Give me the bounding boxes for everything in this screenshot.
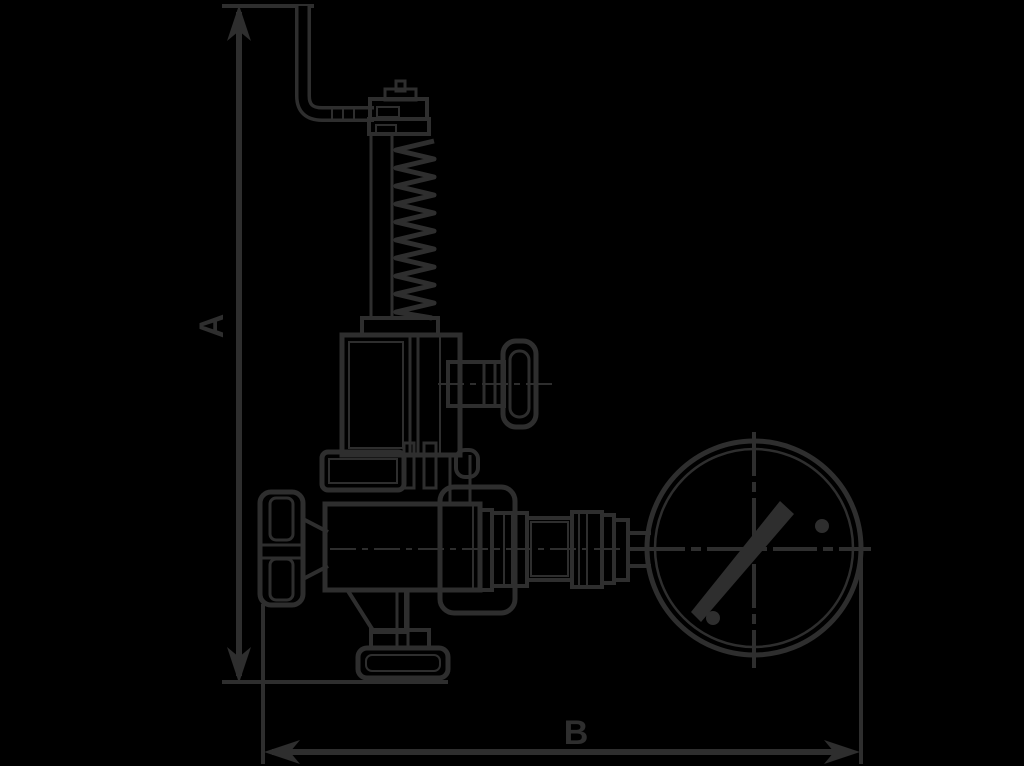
adjusting-screw [369, 81, 429, 134]
flange-outline [322, 452, 404, 490]
lever-bore [303, 6, 374, 114]
pressure-gauge [641, 432, 871, 668]
bonnet [342, 335, 460, 455]
valve-technical-drawing: A B [0, 0, 1024, 766]
base-flange-inner [366, 655, 440, 671]
top-plate-detail [377, 107, 399, 117]
gauge-screw-dot [815, 519, 829, 533]
bonnet-outline [342, 335, 460, 455]
flange-curl [456, 450, 478, 477]
spindle [371, 134, 392, 318]
bonnet-inner [349, 342, 403, 448]
spring-cap-detail [376, 125, 396, 133]
inlet-flange [322, 443, 478, 503]
hand-wheel [260, 492, 328, 605]
gauge-needle [691, 501, 794, 622]
spring [362, 141, 438, 335]
valve-body [325, 487, 515, 678]
gland-valve [438, 341, 553, 427]
gauge-piping [330, 510, 651, 590]
dimension-a-label: A [193, 314, 231, 339]
drawing-stage: A B [0, 0, 1024, 766]
lever-outline [303, 6, 374, 114]
spring-cap [369, 119, 429, 134]
hand-wheel-outline [260, 492, 303, 605]
gauge-screw-dot [706, 611, 720, 625]
lifting-lever [303, 6, 374, 119]
flange-inner [329, 459, 397, 483]
spring-coils [396, 141, 434, 318]
spring-bottom-plate [362, 318, 438, 335]
flange-stud [424, 443, 436, 488]
dimension-b-label: B [564, 714, 589, 752]
hand-wheel-rim-top [270, 498, 293, 540]
base-flange [358, 648, 448, 678]
dimension-b: B [263, 551, 861, 764]
body-outline [325, 504, 480, 590]
hand-wheel-rim-bottom [270, 559, 293, 600]
